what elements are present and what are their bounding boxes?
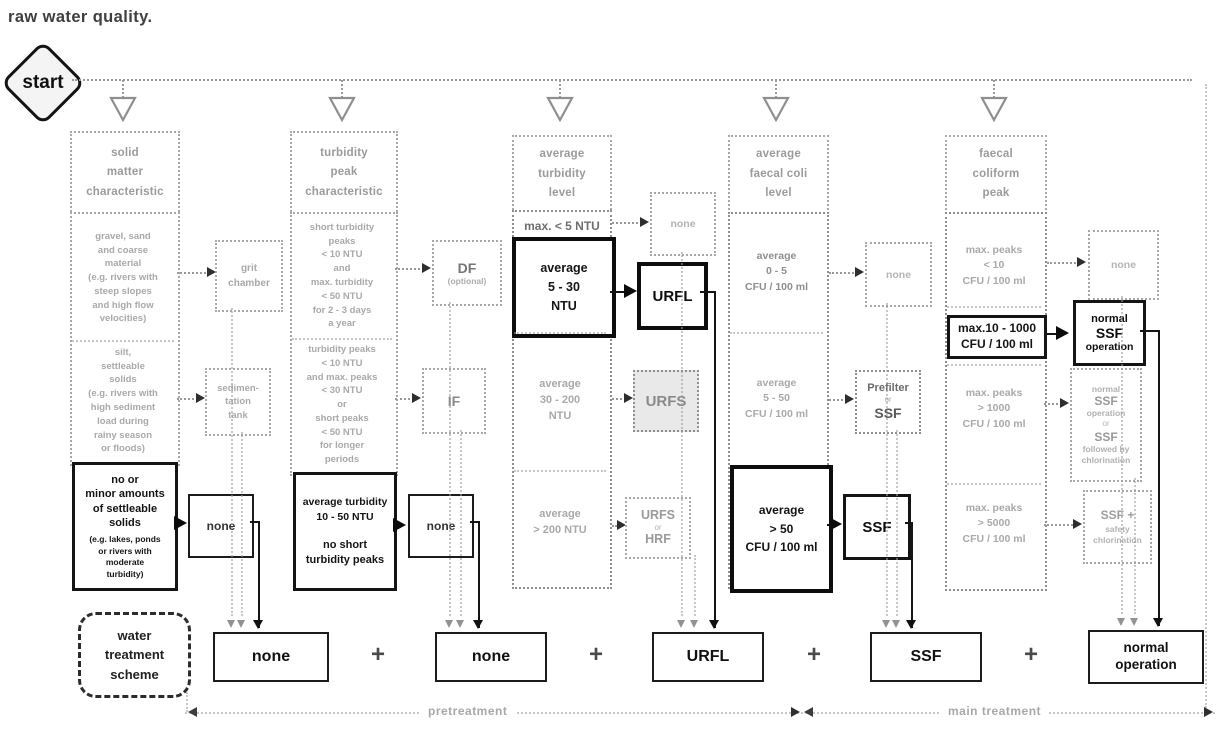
arrow-right-icon (393, 518, 406, 532)
col3-row4-condition: average > 200 NTU (514, 500, 606, 545)
col3-row2-result-box: URFL (637, 262, 708, 330)
col4-row1-result-box: none (865, 242, 932, 307)
col1-row3-condition-box: no or minor amounts of settleable solids… (72, 462, 178, 591)
arrow-down-icon (456, 620, 464, 628)
collector-line-dotted (681, 252, 683, 616)
col5-row3-result-line2: SSF (1094, 394, 1117, 408)
arrow-right-icon (855, 267, 864, 277)
col3-row1-condition: max. < 5 NTU (524, 219, 600, 233)
page-title: raw water quality. (8, 8, 152, 27)
col3-row4-result-line1: URFS (641, 509, 675, 523)
col5-row4-result-line1: SSF + (1101, 508, 1135, 524)
col3-divider (514, 470, 606, 472)
collector-line-dotted (1121, 296, 1123, 614)
arrow-right-icon (196, 393, 205, 403)
collector-line-dotted (231, 308, 233, 616)
col5-divider (947, 306, 1041, 308)
arrow-down-icon (253, 620, 263, 629)
col3-row1-result-box: none (650, 192, 716, 256)
arrow-right-icon (174, 516, 187, 530)
col2-row1-condition: short turbidity peaks < 10 NTU and max. … (292, 216, 392, 336)
collector-line-dotted (241, 432, 243, 616)
header-faecal-coli: average faecal coli level (728, 135, 829, 214)
col3-row2-result: URFL (653, 288, 693, 305)
col2-row3-condition-bottom: no short turbidity peaks (306, 538, 384, 568)
start-node: start (1, 41, 86, 126)
col2-row1-connector (395, 268, 424, 270)
col5-row4-connector (1044, 524, 1076, 526)
arrow-right-icon (1204, 707, 1213, 717)
col5-row4-condition: max. peaks > 5000 CFU / 100 ml (947, 498, 1041, 550)
scheme-box-label: none (252, 648, 290, 666)
col5-row2-result-line3: operation (1086, 341, 1134, 353)
scheme-box-label: URFL (687, 648, 730, 666)
collector-line-dotted (694, 555, 696, 616)
arrow-right-icon (624, 284, 637, 298)
arrow-down-icon (709, 620, 719, 629)
col5-row1-result: none (1111, 259, 1136, 271)
arrow-down-icon (445, 620, 453, 628)
down-open-arrow-icon (327, 96, 357, 127)
col2-row1-result-note: (optional) (448, 276, 487, 286)
col3-row1-connector (612, 222, 642, 224)
scheme-box-ssf: SSF (870, 632, 982, 682)
arrow-down-icon (237, 620, 245, 628)
col1-row1-condition: gravel, sand and coarse material (e.g. r… (72, 220, 174, 336)
col1-row1-result-box: grit chamber (215, 240, 283, 312)
arrow-right-icon (1060, 398, 1069, 408)
col4-row3-result-box: SSF (843, 494, 911, 560)
col5-row3-result-line7: chlorination (1082, 455, 1131, 466)
header-solid-matter: solid matter characteristic (70, 131, 180, 215)
scheme-box-normal-operation: normal operation (1088, 630, 1204, 684)
col2-row1-result-box: DF (optional) (432, 240, 502, 306)
col5-row1-connector (1047, 262, 1079, 264)
plus-sign: + (589, 641, 603, 669)
collector-elbow (1140, 330, 1160, 332)
header-average-turbidity: average turbidity level (512, 135, 612, 214)
footer-label-pretreatment: pretreatment (420, 704, 515, 718)
col5-row3-condition: max. peaks > 1000 CFU / 100 ml (947, 383, 1041, 435)
col4-row2-result-box: Prefilter or SSF (855, 370, 921, 434)
start-label: start (22, 72, 63, 94)
col5-row3-result-line5: SSF (1094, 430, 1117, 444)
col1-row2-connector (177, 398, 198, 400)
col5-row1-condition: max. peaks < 10 CFU / 100 ml (947, 238, 1041, 294)
col2-row2-result-box: IF (422, 368, 486, 434)
down-open-arrow-icon (545, 96, 575, 127)
scheme-box-none-1: none (213, 632, 329, 682)
collector-line-solid (1158, 330, 1160, 626)
col4-row1-condition: average 0 - 5 CFU / 100 ml (730, 246, 823, 298)
collector-line-dotted (896, 430, 898, 616)
col5-divider (947, 483, 1041, 485)
footer-span-line (185, 712, 1215, 714)
footer-label-main-treatment: main treatment (940, 704, 1049, 718)
col5-row3-result-box: normal SSF operation or SSF followed by … (1070, 368, 1142, 482)
col1-row1-connector (177, 272, 209, 274)
arrow-right-icon (791, 707, 800, 717)
col2-row3-result: none (427, 519, 456, 533)
arrow-right-icon (640, 217, 649, 227)
col2-row1-result: DF (458, 260, 477, 276)
col3-row3-result-box: URFS (633, 370, 699, 432)
down-open-arrow-icon (761, 96, 791, 127)
col2-row3-result-box: none (408, 494, 474, 558)
col3-row4-result-line3: HRF (645, 533, 671, 547)
scheme-box-none-2: none (435, 632, 547, 682)
col1-row2-condition: silt, settleable solids (e.g. rivers wit… (72, 344, 174, 458)
right-edge-dotted-line (1205, 84, 1207, 708)
collector-line-solid (911, 522, 913, 628)
collector-line-dotted (1134, 478, 1136, 614)
plus-sign: + (371, 641, 385, 669)
arrow-right-icon (1056, 326, 1069, 340)
collector-line-dotted (449, 302, 451, 616)
down-open-arrow-icon (979, 96, 1009, 127)
arrow-right-icon (412, 393, 421, 403)
flowchart-canvas: raw water quality. start solid matter ch… (0, 0, 1221, 739)
col4-row1-result: none (886, 269, 911, 281)
arrow-right-icon (1077, 257, 1086, 267)
arrow-down-icon (1117, 618, 1125, 626)
arrow-left-icon (804, 707, 813, 717)
plus-sign: + (1024, 641, 1038, 669)
collector-line-solid (714, 291, 716, 628)
main-branch-line (72, 79, 1192, 81)
col4-row1-connector (829, 272, 857, 274)
col3-row2-condition-box: average 5 - 30 NTU (512, 237, 616, 338)
arrow-down-icon (677, 620, 685, 628)
arrow-right-icon (422, 263, 431, 273)
collector-line-solid (258, 521, 260, 628)
col1-row2-result-box: sedimen- tation tank (205, 368, 271, 436)
col5-row2-condition-box: max.10 - 1000 CFU / 100 ml (947, 315, 1047, 359)
arrow-down-icon (1153, 618, 1163, 627)
scheme-label-box: water treatment scheme (78, 612, 191, 698)
col2-row3-condition-box: average turbidity 10 - 50 NTU no short t… (293, 472, 397, 591)
down-open-arrow-icon (108, 96, 138, 127)
col1-row3-condition: no or minor amounts of settleable solids (85, 473, 164, 530)
plus-sign: + (807, 641, 821, 669)
col1-row3-condition-note: (e.g. lakes, ponds or rivers with modera… (89, 534, 160, 580)
col2-row2-condition: turbidity peaks < 10 NTU and max. peaks … (292, 340, 392, 470)
arrow-right-icon (845, 394, 854, 404)
col1-row3-result-box: none (188, 494, 254, 558)
col5-row2-result-box: normal SSF operation (1073, 300, 1146, 366)
scheme-box-urfl: URFL (652, 632, 764, 682)
col5-row1-result-box: none (1088, 230, 1159, 300)
arrow-down-icon (892, 620, 900, 628)
col4-row3-condition-box: average > 50 CFU / 100 ml (730, 465, 833, 593)
header-coliform-peak: faecal coliform peak (945, 135, 1047, 214)
col5-row3-result-line4: or (1102, 419, 1109, 429)
col5-divider (947, 364, 1041, 366)
arrow-down-icon (1130, 618, 1138, 626)
arrow-right-icon (829, 517, 842, 531)
header-turbidity-peak: turbidity peak characteristic (290, 131, 398, 215)
arrow-down-icon (882, 620, 890, 628)
col5-row3-result-line1: normal (1092, 384, 1120, 394)
scheme-box-label: none (472, 648, 510, 666)
scheme-box-label: SSF (910, 648, 941, 666)
col4-divider (730, 332, 823, 334)
collector-line-solid (478, 521, 480, 628)
arrow-right-icon (624, 393, 633, 403)
col1-divider (72, 340, 174, 342)
scheme-box-label: normal operation (1115, 640, 1177, 674)
col4-row2-condition: average 5 - 50 CFU / 100 ml (730, 373, 823, 425)
col5-row3-result-line3: operation (1087, 408, 1126, 419)
arrow-down-icon (473, 620, 483, 629)
collector-line-dotted (886, 303, 888, 616)
arrow-left-icon (188, 707, 197, 717)
arrow-down-icon (227, 620, 235, 628)
col3-row1-result: none (670, 218, 695, 230)
arrow-down-icon (906, 620, 916, 629)
arrow-down-icon (690, 620, 698, 628)
col3-divider (514, 332, 606, 334)
col5-row4-result-line2: safety (1105, 524, 1130, 535)
collector-line-dotted (460, 430, 462, 616)
col2-row3-condition-top: average turbidity 10 - 50 NTU (303, 495, 388, 523)
col5-row4-result-box: SSF + safety chlorination (1083, 490, 1152, 564)
scheme-label: water treatment scheme (105, 626, 164, 685)
col3-row3-condition: average 30 - 200 NTU (514, 372, 606, 430)
col5-row2-result-line2: SSF (1096, 325, 1123, 341)
arrow-right-icon (1073, 519, 1082, 529)
